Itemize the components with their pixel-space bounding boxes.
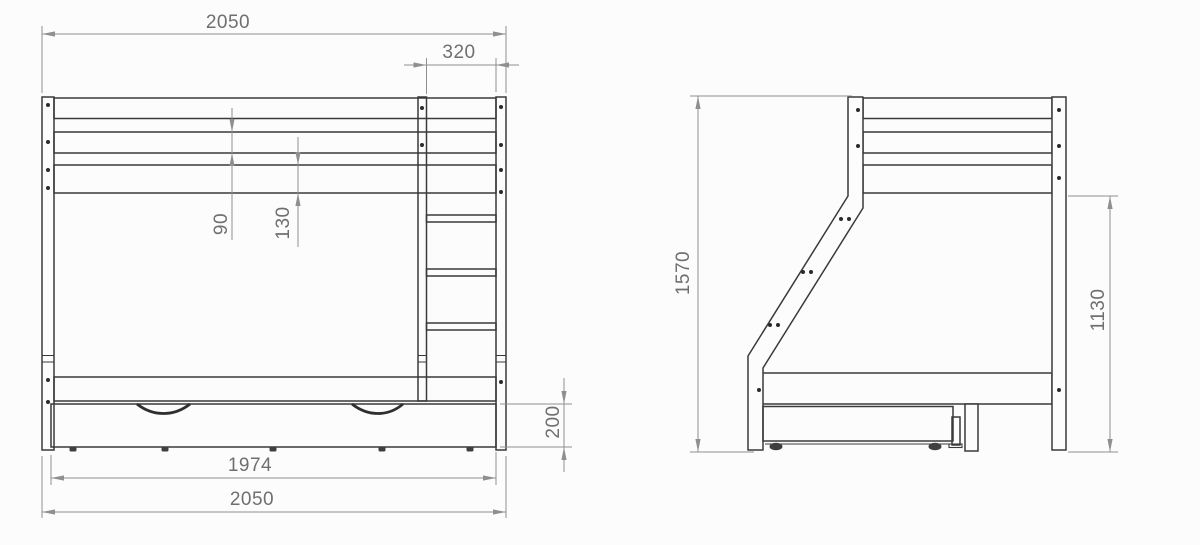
right-post <box>496 97 506 450</box>
dim-label-drawer-height: 200 <box>543 405 564 438</box>
dim-label-bed-rail-plank: 130 <box>273 206 294 239</box>
side-base-rail <box>757 373 1052 404</box>
drawer-foot <box>467 447 474 452</box>
drawer-wheel-right <box>929 443 942 451</box>
front-bolts <box>46 103 503 404</box>
drawer-foot <box>379 447 386 452</box>
ladder-rung-2 <box>427 269 497 276</box>
dim-arrow <box>1107 196 1112 209</box>
lower-bed-rail <box>54 377 496 401</box>
side-rear-post <box>1052 97 1066 450</box>
side-bolts <box>757 108 1061 392</box>
side-view <box>748 97 1066 451</box>
dim-arrow <box>483 475 496 480</box>
dim-drawer-height: 200 <box>500 378 572 472</box>
technical-drawing-page: 2050 320 90 130 200 1974 <box>0 0 1200 545</box>
post-joint-ticks <box>42 356 506 363</box>
drawer-handle-right <box>352 404 403 414</box>
dim-guard-rail-plank: 90 <box>211 108 235 240</box>
dim-arrow <box>561 391 566 404</box>
dim-arrow <box>496 62 509 67</box>
left-post <box>42 97 54 450</box>
dim-arrow <box>229 119 234 132</box>
dim-label-guard-rail-plank: 90 <box>211 213 232 235</box>
ladder-rung-1 <box>427 215 497 222</box>
dim-arrow <box>695 96 700 109</box>
side-bed-frame-rail <box>863 165 1052 193</box>
dim-label-overall-width-top: 2050 <box>206 12 250 33</box>
drawer-side <box>763 407 953 442</box>
drawer-foot <box>162 447 169 452</box>
dim-arrow <box>493 509 506 514</box>
bunk-bed-drawing: 2050 320 90 130 200 1974 <box>0 0 1200 545</box>
side-top-guard-rail <box>863 98 1052 119</box>
dim-arrow <box>42 31 55 36</box>
top-guard-rail <box>54 98 496 119</box>
dim-overall-width-bottom: 2050 <box>42 456 506 518</box>
slanted-post <box>748 97 863 450</box>
dim-underside-clearance: 1130 <box>1068 196 1118 452</box>
dim-arrow <box>42 509 55 514</box>
drawer-wheel-left <box>770 443 783 451</box>
second-guard-rail <box>54 132 496 153</box>
dim-arrow <box>295 193 300 206</box>
front-view <box>42 97 506 452</box>
drawer-foot <box>270 447 277 452</box>
dim-arrow <box>229 153 234 166</box>
support-leg <box>965 404 978 451</box>
dim-overall-width-top: 2050 <box>42 12 506 93</box>
bed-frame-rail <box>54 165 496 193</box>
dim-arrow <box>414 62 427 67</box>
ladder-rung-3 <box>427 323 497 330</box>
dim-arrow <box>493 31 506 36</box>
dim-arrow <box>295 152 300 165</box>
dim-arrow <box>1107 439 1112 452</box>
dim-ladder-width: 320 <box>404 42 519 94</box>
drawer-handle-left <box>137 404 190 414</box>
dim-drawer-width: 1974 <box>51 452 496 485</box>
dim-arrow <box>561 447 566 460</box>
dim-label-underside-clearance: 1130 <box>1088 289 1109 332</box>
drawer-front <box>51 404 496 447</box>
dim-arrow <box>695 439 700 452</box>
drawer-foot <box>70 447 77 452</box>
side-second-guard-rail <box>863 132 1052 153</box>
dim-label-ladder-width: 320 <box>442 42 475 63</box>
dim-arrow <box>51 475 64 480</box>
dim-label-overall-height: 1570 <box>673 251 694 295</box>
dim-label-overall-width-bottom: 2050 <box>230 489 274 510</box>
dim-label-drawer-width: 1974 <box>228 455 272 476</box>
